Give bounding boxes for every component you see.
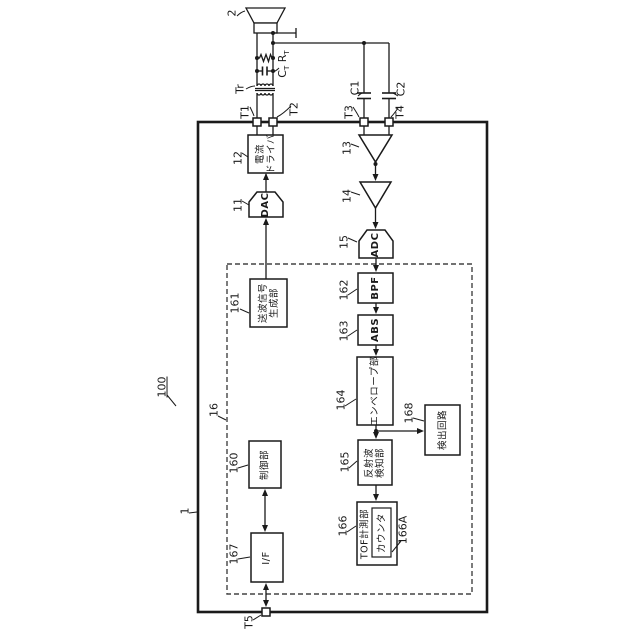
terminal-t4 — [385, 118, 393, 126]
tof-label: TOF計測部 — [359, 508, 370, 558]
resistor-rt-icon — [257, 55, 273, 62]
terminal-t3 — [360, 118, 368, 126]
ref-device: 1 — [180, 508, 193, 515]
envelope-label: エンベロープ部 — [369, 356, 380, 425]
ref-transducer: 2 — [227, 10, 240, 17]
terminal-t1 — [253, 118, 261, 126]
transformer-icon — [255, 84, 275, 95]
ref-t5: T5 — [244, 615, 257, 629]
ref-c1: C1 — [350, 81, 363, 96]
abs-label: ABS — [370, 318, 382, 342]
terminal-t2 — [269, 118, 277, 126]
capacitor-ct-icon — [257, 67, 273, 76]
txgen-label: 送波信号 生成部 — [257, 283, 279, 323]
ref-interface: 167 — [229, 544, 242, 565]
dac-label: DAC — [260, 193, 272, 218]
ref-system: 100 — [157, 377, 170, 398]
ref-txgen: 161 — [230, 293, 243, 314]
ref-chip: 16 — [209, 403, 222, 417]
ref-dac: 11 — [233, 198, 246, 212]
ref-driver: 12 — [233, 151, 246, 165]
control-label: 制御部 — [259, 449, 270, 479]
ref-detect: 168 — [404, 403, 417, 424]
ref-control: 160 — [229, 453, 242, 474]
ref-c2: C2 — [396, 82, 409, 97]
ref-envelope: 164 — [336, 390, 349, 411]
ref-t4: T4 — [395, 105, 408, 119]
ref-abs: 163 — [339, 321, 352, 342]
current-driver-label: 電流 ドライバ — [254, 134, 276, 174]
counter-label: カウンタ — [376, 512, 387, 552]
ref-tof: 166 — [338, 516, 351, 537]
ref-amp2: 14 — [342, 189, 355, 203]
ref-t2: T2 — [289, 102, 302, 116]
bpf-label: BPF — [370, 276, 382, 299]
terminal-t5 — [262, 608, 270, 616]
ref-bpf: 162 — [339, 280, 352, 301]
detection-circuit-label: 検出回路 — [437, 410, 448, 450]
ref-counter: 166A — [398, 516, 411, 545]
circuit-drawing — [0, 0, 640, 640]
ref-transformer: Tr — [235, 84, 248, 94]
adc-label: ADC — [370, 233, 382, 258]
ref-t3: T3 — [344, 105, 357, 119]
ref-amp1: 13 — [342, 141, 355, 155]
reflect-detect-label: 反射波 検知部 — [364, 447, 386, 477]
ref-ct-rt: CT RT — [277, 50, 291, 77]
interface-label: I/F — [261, 551, 273, 565]
ref-t1: T1 — [240, 105, 253, 119]
ref-reflect: 165 — [340, 452, 353, 473]
patent-figure: 電流 ドライバ DAC ADC BPF ABS エンベロープ部 送波信号 生成部… — [0, 0, 640, 640]
ref-adc: 15 — [339, 235, 352, 249]
transducer-icon — [246, 8, 285, 33]
